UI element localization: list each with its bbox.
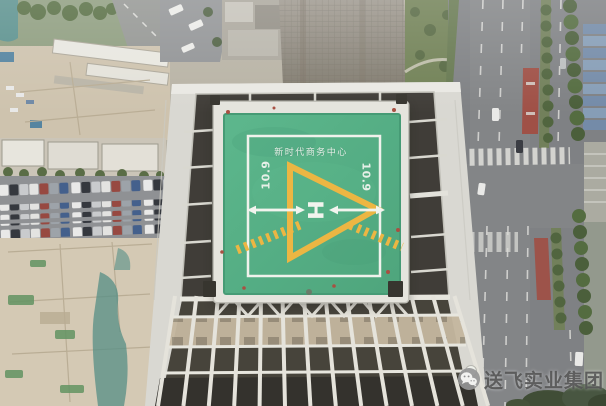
blue-roofs (583, 24, 606, 130)
support-post (396, 94, 407, 104)
truss-structure (155, 296, 488, 406)
support-post (388, 281, 403, 297)
wechat-icon (458, 368, 480, 390)
watermark-text: 送飞实业集团 (484, 366, 604, 393)
support-post (210, 95, 220, 105)
helipad: 新时代商务中心 10.9 10.9 H (214, 102, 408, 302)
helipad-dimension-right: 10.9 (360, 162, 373, 191)
aerial-photo: 新时代商务中心 10.9 10.9 H 送飞实业集团 (0, 0, 606, 406)
helipad-dimension-left: 10.9 (260, 160, 273, 189)
helipad-title: 新时代商务中心 (214, 145, 408, 158)
construction-site-left (0, 0, 173, 406)
parking-lot (0, 176, 173, 240)
support-post (203, 281, 216, 297)
watermark: 送飞实业集团 (458, 365, 604, 393)
background-tower (279, 0, 408, 86)
helipad-h-marking: H (304, 200, 326, 220)
